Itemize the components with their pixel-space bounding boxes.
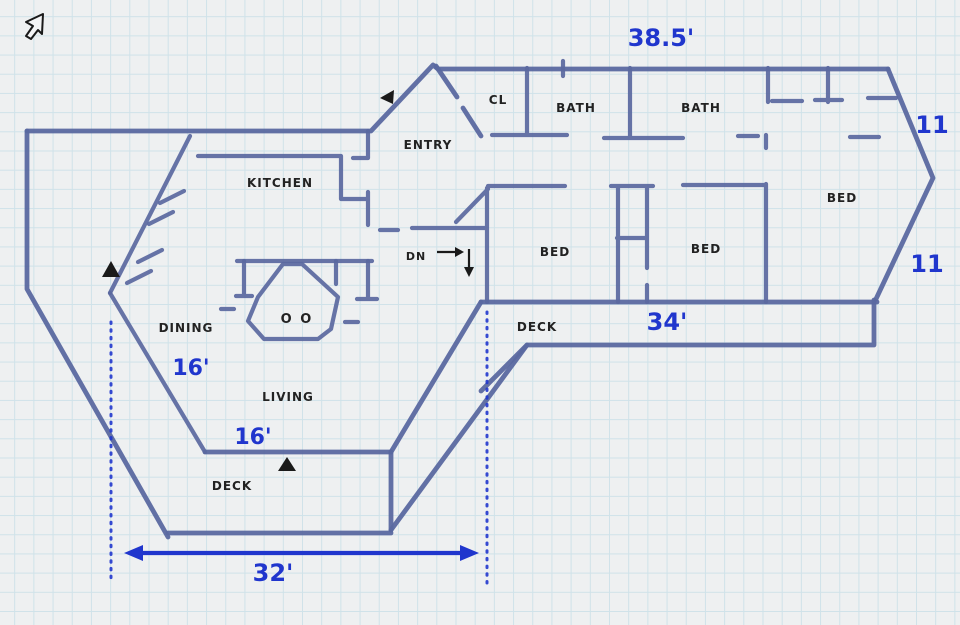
room-label-dining: DINING [159,321,214,335]
room-label-bed-right: BED [827,191,857,205]
right-arrow-head [455,247,464,257]
entry-triangle-marker [380,90,394,104]
mouse-cursor-icon [26,14,43,39]
fireplace-island [221,261,377,339]
floor-plan-sketch: KITCHEN ENTRY CL BATH BATH BED BED BED D… [0,0,960,625]
graph-paper-sheet: KITCHEN ENTRY CL BATH BATH BED BED BED D… [0,0,960,625]
down-arrow-head [464,267,474,277]
dimension-dining-wall: 16' [172,356,209,381]
deck-triangle-marker [278,457,296,471]
room-label-deck-lower: DECK [212,479,252,493]
fireplace-burners-label: O O [281,312,314,327]
arrow-head-right [460,545,479,561]
room-label-entry: ENTRY [404,138,453,152]
stairs-down-label: DN [406,250,426,263]
room-label-bed-left: BED [540,245,570,259]
stairs-down-arrows [437,247,474,277]
dimension-deck-width: 32' [253,559,294,587]
arrow-head-left [124,545,143,561]
dimension-side-upper: 11 [915,111,948,139]
dining-triangle-marker [102,261,120,277]
floorplan-interior-walls [110,61,896,452]
room-label-kitchen: KITCHEN [247,176,313,190]
room-label-bath-left: BATH [556,101,596,115]
room-label-bath-right: BATH [681,101,721,115]
room-label-deck-upper: DECK [517,320,557,334]
room-label-living: LIVING [262,390,314,404]
dimension-living-wall: 16' [234,425,271,450]
floorplan-outer-walls [27,65,933,537]
room-label-bed-middle: BED [691,242,721,256]
dimension-wing-width: 34' [647,308,688,336]
room-label-closet: CL [489,93,507,107]
dimension-side-lower: 11 [910,250,943,278]
dimension-top-width: 38.5' [628,24,695,52]
dimension-extension-lines [111,312,487,585]
deck-width-arrow [124,545,479,561]
